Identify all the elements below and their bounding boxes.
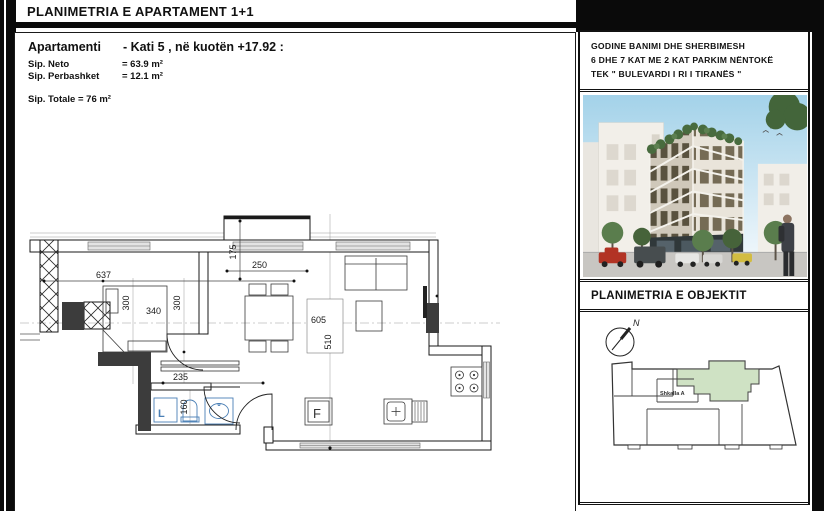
apartment-location: - Kati 5 , në kuotën +17.92 : [123, 40, 284, 54]
dim-637: 637 [96, 270, 111, 280]
apartment-heading: Apartamenti - Kati 5 , në kuotën +17.92 … [28, 40, 284, 54]
net-area-label: Sip. Neto [28, 59, 122, 70]
shared-area-row: Sip. Perbashket = 12.1 m² [28, 71, 163, 82]
sofa [345, 256, 407, 290]
dimension-dots [43, 220, 439, 450]
coffee-table [356, 301, 382, 331]
balcony [224, 216, 310, 240]
dim-300-b: 300 [172, 295, 182, 310]
project-line-2: 6 DHE 7 KAT ME 2 KAT PARKIM NËNTOKË [591, 54, 797, 68]
sheet-title: PLANIMETRIA E APARTAMENT 1+1 [27, 4, 254, 19]
north-label: N [633, 318, 640, 328]
dim-300-a: 300 [121, 295, 131, 310]
drawing-sheet: PLANIMETRIA E APARTAMENT 1+1 Apartamenti… [0, 0, 828, 511]
bathroom-door [204, 387, 240, 423]
title-block-panel: GODINE BANIMI DHE SHERBIMESH 6 DHE 7 KAT… [578, 30, 810, 505]
bed [103, 286, 167, 352]
stair-label: Shkalla A [660, 391, 685, 397]
dining-table [245, 284, 293, 352]
dim-235: 235 [173, 372, 188, 382]
dim-510: 510 [323, 334, 333, 349]
entry-door [236, 394, 272, 430]
divider-bottom [580, 502, 808, 505]
washer-label: L [158, 408, 165, 420]
shared-area-value: = 12.1 m² [122, 71, 163, 82]
building-rendering [580, 92, 808, 279]
north-compass: N [606, 318, 640, 356]
sheet-right-border [812, 0, 824, 511]
dim-160: 160 [179, 399, 189, 414]
net-area-value: = 63.9 m² [122, 59, 163, 70]
dimension-labels: 637 175 250 300 300 340 605 510 235 160 [96, 244, 333, 414]
dim-250: 250 [252, 260, 267, 270]
project-line-1: GODINE BANIMI DHE SHERBIMESH [591, 40, 797, 54]
stove [451, 367, 482, 396]
apartment-label: Apartamenti [28, 40, 101, 54]
bath-fixtures [154, 398, 233, 424]
top-right-black-band [576, 0, 812, 32]
fridge-label: F [313, 406, 321, 421]
shared-area-label: Sip. Perbashket [28, 71, 122, 82]
background-building-far-left [583, 142, 601, 254]
net-area-row: Sip. Neto = 63.9 m² [28, 59, 163, 70]
project-description: GODINE BANIMI DHE SHERBIMESH 6 DHE 7 KAT… [580, 32, 808, 89]
site-plan-title: PLANIMETRIA E OBJEKTIT [580, 282, 808, 309]
dim-605: 605 [311, 315, 326, 325]
dim-175: 175 [228, 244, 238, 259]
site-plan: N Shkalla A [580, 312, 808, 502]
tv [423, 286, 427, 318]
dim-340: 340 [146, 306, 161, 316]
project-line-3: TEK " BULEVARDI I RI I TIRANËS " [591, 68, 797, 82]
floor-plan: F L 6 [14, 202, 576, 502]
kitchen-sink [384, 399, 427, 424]
title-underline [14, 22, 578, 28]
total-area: Sip. Totale = 76 m² [28, 94, 111, 105]
sheet-left-border-stripe [4, 0, 6, 511]
